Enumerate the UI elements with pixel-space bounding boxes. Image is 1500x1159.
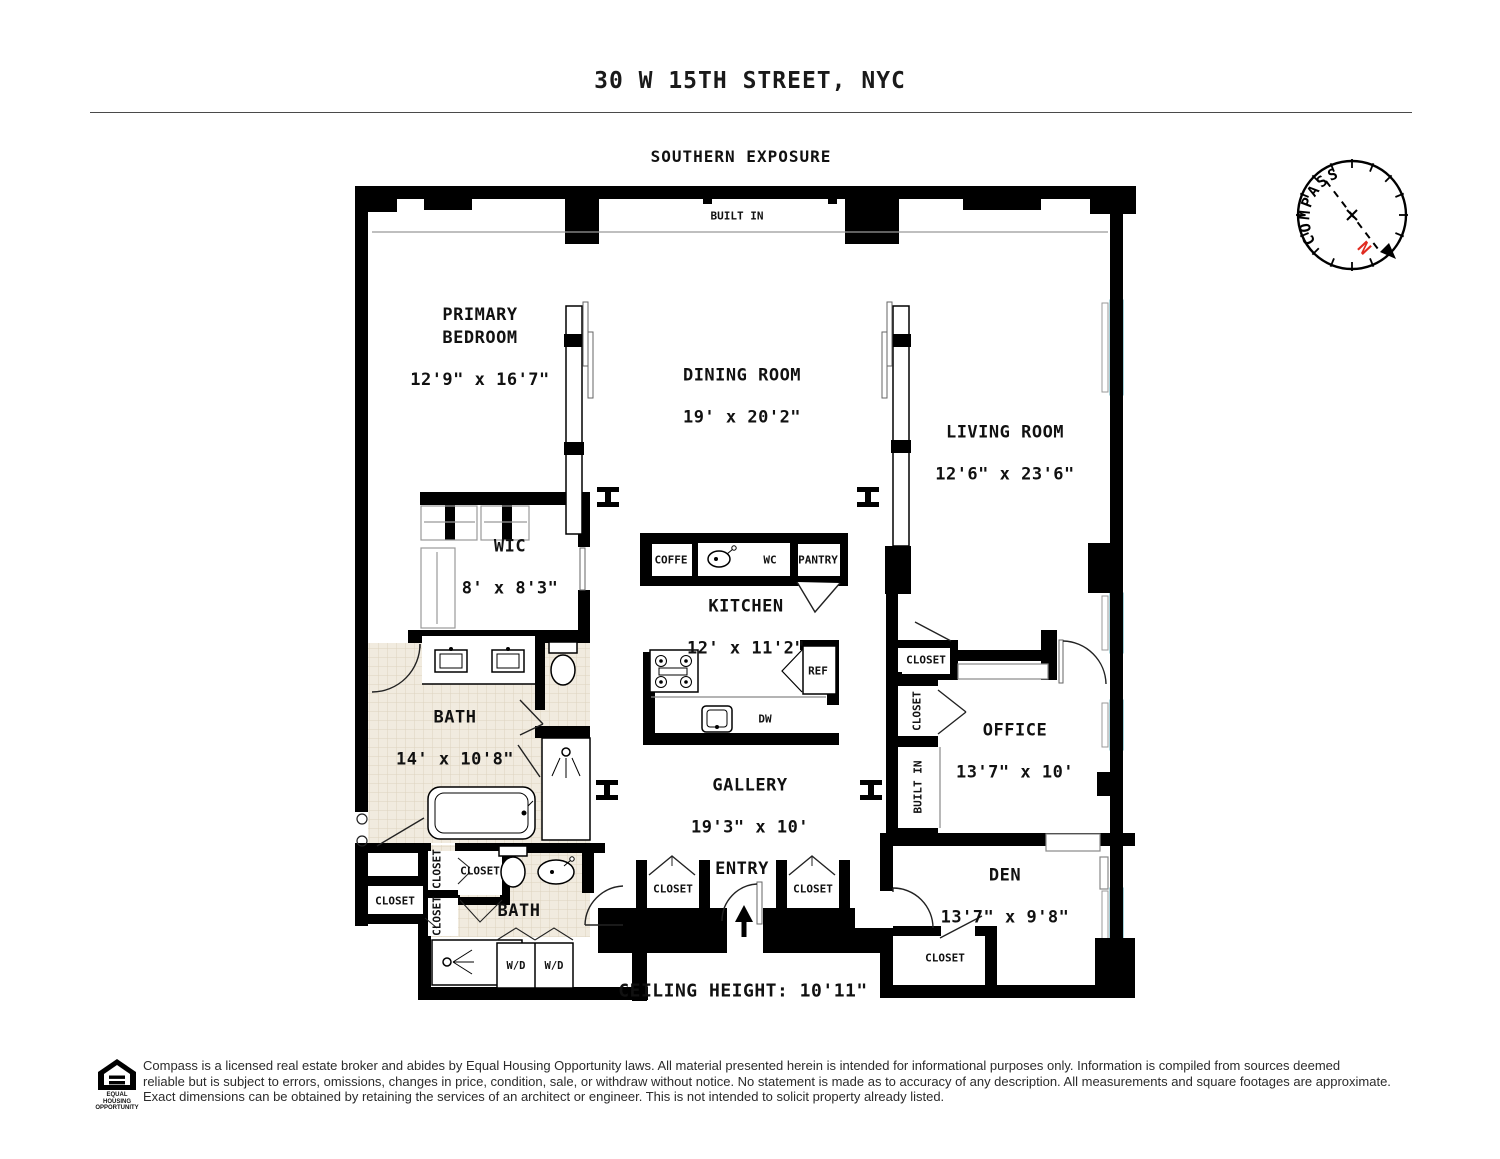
pantry-label: PANTRY xyxy=(798,554,838,567)
toilet-second xyxy=(499,846,527,887)
room-name: OFFICE xyxy=(956,720,1074,743)
room-name: DEN xyxy=(941,865,1070,888)
closet-vertical-a-label: CLOSET xyxy=(431,849,444,889)
entry-arrow-icon xyxy=(735,905,753,937)
closet-office-top-label: CLOSET xyxy=(906,654,946,667)
room-label-primary-bedroom: PRIMARY BEDROOM 12'9" x 16'7" xyxy=(410,285,550,411)
closet-entry-right-label: CLOSET xyxy=(793,883,833,896)
washer-label: W/D xyxy=(507,960,526,972)
ceiling-height-note: CEILING HEIGHT: 10'11" xyxy=(618,981,867,1002)
wc-label: WC xyxy=(763,554,776,567)
room-name: DINING ROOM xyxy=(683,365,801,388)
room-label-office: OFFICE 13'7" x 10' xyxy=(956,701,1074,804)
closet-vertical-b-label: CLOSET xyxy=(431,896,444,936)
shower-primary xyxy=(542,738,590,840)
footer-disclaimer: Compass is a licensed real estate broker… xyxy=(143,1058,1423,1105)
coffee-label: COFFE xyxy=(654,554,687,567)
closet-entry-left-label: CLOSET xyxy=(653,883,693,896)
ref-label: REF xyxy=(808,665,828,678)
room-name: BATH xyxy=(396,707,514,730)
room-label-bath: BATH 14' x 10'8" xyxy=(396,688,514,791)
entry-label: ENTRY xyxy=(715,859,769,879)
room-name: PRIMARY BEDROOM xyxy=(410,304,550,350)
room-dims: 12'9" x 16'7" xyxy=(410,369,550,392)
room-name: GALLERY xyxy=(691,775,809,798)
room-dims: 12' x 11'2" xyxy=(687,638,805,661)
room-label-living: LIVING ROOM 12'6" x 23'6" xyxy=(935,403,1075,506)
closet-den-label: CLOSET xyxy=(925,952,965,965)
wc-toilet-icon xyxy=(708,546,736,567)
room-label-dining: DINING ROOM 19' x 20'2" xyxy=(683,346,801,449)
room-label-wic: WIC 8' x 8'3" xyxy=(462,517,559,620)
room-dims: 8' x 8'3" xyxy=(462,578,559,601)
room-dims: 13'7" x 10' xyxy=(956,762,1074,785)
room-dims: 19' x 20'2" xyxy=(683,407,801,430)
closet-hall-label: CLOSET xyxy=(460,865,500,878)
closet-office-side-label: CLOSET xyxy=(911,691,924,731)
room-label-bath2: BATH xyxy=(498,901,541,921)
room-label-kitchen: KITCHEN 12' x 11'2" xyxy=(687,577,805,680)
floorplan-page: 30 W 15TH STREET, NYC SOUTHERN EXPOSURE xyxy=(0,0,1500,1159)
vanity-double-sink xyxy=(422,636,535,684)
bathtub xyxy=(428,787,535,839)
room-dims: 14' x 10'8" xyxy=(396,749,514,772)
equal-housing-caption: EQUAL HOUSING OPPORTUNITY xyxy=(94,1092,140,1112)
toilet-primary xyxy=(549,642,577,685)
room-name: KITCHEN xyxy=(687,596,805,619)
built-in-office-label: BUILT IN xyxy=(912,761,925,814)
room-dims: 19'3" x 10' xyxy=(691,817,809,840)
room-label-den: DEN 13'7" x 9'8" xyxy=(941,846,1070,949)
closet-left-label: CLOSET xyxy=(375,895,415,908)
footer-line-1: Compass is a licensed real estate broker… xyxy=(143,1058,1423,1074)
dw-label: DW xyxy=(758,713,771,726)
room-label-gallery: GALLERY 19'3" x 10' xyxy=(691,756,809,859)
built-in-top-label: BUILT IN xyxy=(711,210,764,223)
room-name: WIC xyxy=(462,536,559,559)
room-dims: 13'7" x 9'8" xyxy=(941,907,1070,930)
kitchen-sink xyxy=(651,697,826,732)
compass-rose: COMPASS N xyxy=(1295,159,1408,271)
equal-housing-icon xyxy=(98,1059,136,1090)
dryer-label: W/D xyxy=(545,960,564,972)
footer-line-2: reliable but is subject to errors, omiss… xyxy=(143,1074,1423,1090)
footer-line-3: Exact dimensions can be obtained by reta… xyxy=(143,1089,1423,1105)
compass-north-letter: N xyxy=(1353,238,1375,259)
room-name: LIVING ROOM xyxy=(935,422,1075,445)
room-dims: 12'6" x 23'6" xyxy=(935,464,1075,487)
